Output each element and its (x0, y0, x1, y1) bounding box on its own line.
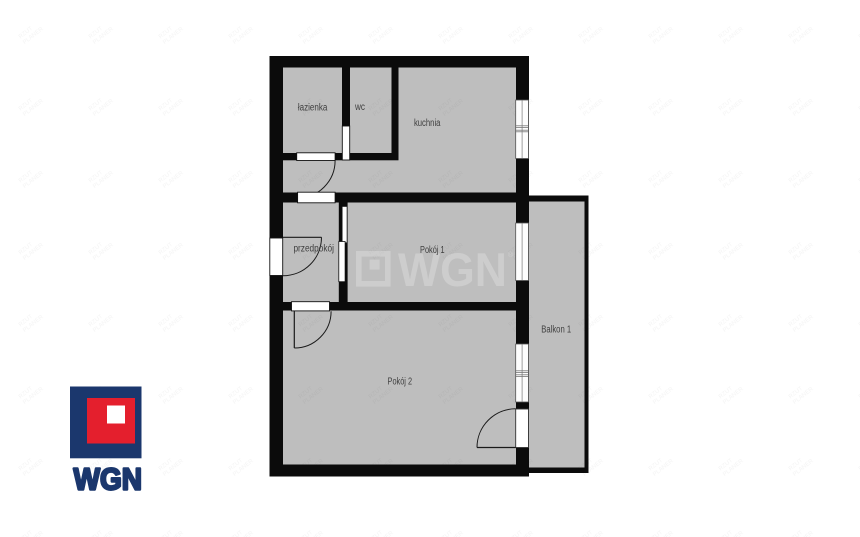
svg-text:kuchnia: kuchnia (414, 118, 441, 129)
svg-text:Pokój 2: Pokój 2 (388, 377, 413, 388)
svg-text:wc: wc (354, 102, 365, 113)
svg-text:Balkon 1: Balkon 1 (541, 325, 571, 336)
svg-text:WGN: WGN (74, 462, 143, 497)
svg-text:przedpokój: przedpokój (293, 244, 334, 255)
svg-text:Pokój 1: Pokój 1 (420, 245, 445, 256)
svg-text:WGN: WGN (398, 243, 507, 296)
svg-text:®: ® (508, 251, 514, 259)
svg-text:łazienka: łazienka (298, 103, 328, 114)
